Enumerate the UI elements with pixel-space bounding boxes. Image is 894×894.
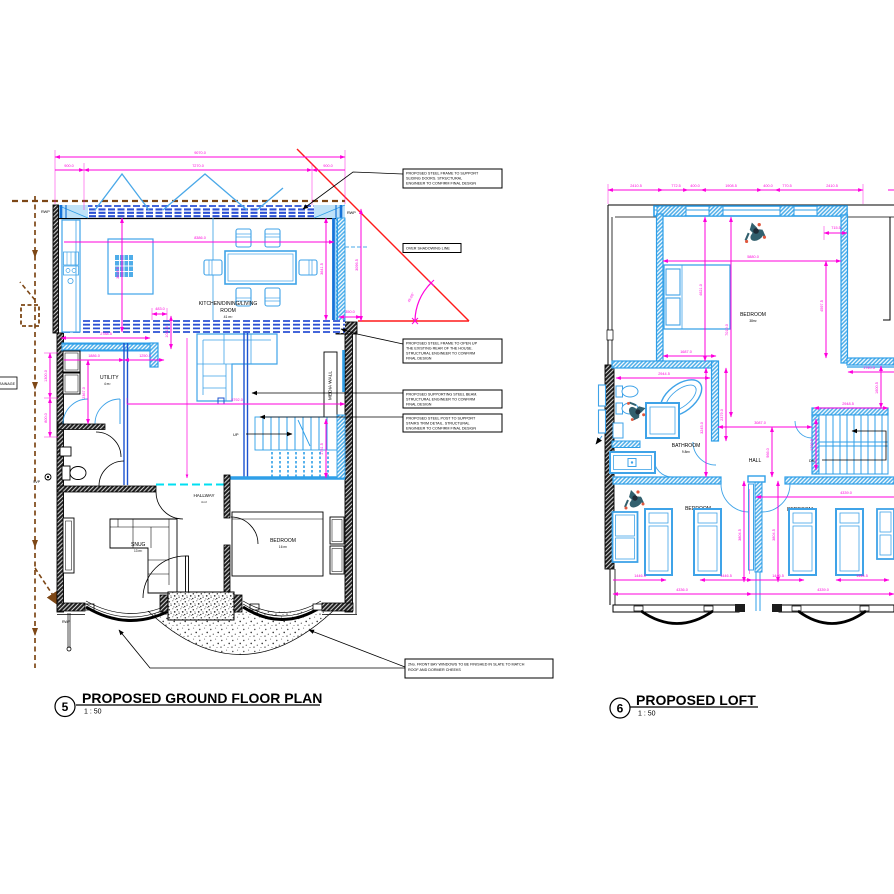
svg-text:9070.0: 9070.0 [194, 151, 206, 155]
svg-text:3618.5: 3618.5 [116, 267, 120, 279]
svg-text:4 m²: 4 m² [104, 382, 110, 386]
svg-text:RWP: RWP [347, 211, 356, 215]
svg-text:BEDROOM: BEDROOM [270, 538, 296, 544]
svg-text:7270.0: 7270.0 [192, 164, 204, 168]
svg-text:8386.0: 8386.0 [194, 236, 206, 240]
svg-text:3641.5: 3641.5 [320, 263, 324, 275]
svg-text:5880.0: 5880.0 [747, 255, 759, 259]
svg-text:MEDIA WALL: MEDIA WALL [328, 371, 334, 400]
svg-text:PROPOSED SUPPORTING STEEL BEAM: PROPOSED SUPPORTING STEEL BEAM. [406, 393, 477, 397]
svg-text:4621.0: 4621.0 [699, 284, 703, 296]
svg-text:BEDROOM: BEDROOM [740, 312, 766, 318]
svg-text:1300.0: 1300.0 [44, 370, 48, 382]
svg-text:SNUG: SNUG [131, 542, 146, 548]
svg-text:FINAL DESIGN: FINAL DESIGN [406, 357, 432, 361]
svg-text:16 m²: 16 m² [279, 545, 287, 549]
svg-text:ENGINEER TO CONFIRM FINAL DESI: ENGINEER TO CONFIRM FINAL DESIGN [406, 427, 476, 431]
svg-text:1250.5: 1250.5 [139, 354, 151, 358]
svg-text:STRUCTURAL ENGINEER TO CONFIRM: STRUCTURAL ENGINEER TO CONFIRM [406, 352, 475, 356]
svg-text:ROOM: ROOM [220, 308, 236, 314]
svg-text:2948.5: 2948.5 [842, 402, 854, 406]
svg-text:1700.0: 1700.0 [810, 439, 814, 451]
svg-text:800.0: 800.0 [44, 413, 48, 423]
svg-text:2367.0: 2367.0 [82, 387, 86, 399]
svg-text:4 m²: 4 m² [201, 500, 207, 504]
svg-text:3245.0: 3245.0 [700, 422, 704, 434]
svg-text:1600.5: 1600.5 [875, 382, 879, 394]
svg-text:OVER SHADOWING LINE: OVER SHADOWING LINE [406, 247, 450, 251]
svg-text:FINAL DESIGN: FINAL DESIGN [406, 403, 432, 407]
svg-text:38m²: 38m² [749, 319, 756, 323]
svg-text:1446.5: 1446.5 [772, 574, 784, 578]
svg-text:RWP: RWP [41, 210, 50, 214]
svg-text:7010.0: 7010.0 [725, 324, 729, 336]
svg-text:1908.5: 1908.5 [725, 184, 737, 188]
svg-text:9.8m²: 9.8m² [682, 450, 690, 454]
svg-text:1446.5: 1446.5 [720, 574, 732, 578]
svg-text:1 : 50: 1 : 50 [638, 711, 656, 718]
svg-text:6792.0: 6792.0 [231, 398, 243, 402]
svg-text:SVP: SVP [33, 480, 41, 484]
svg-text:2788.5: 2788.5 [100, 332, 112, 336]
svg-text:4336.0: 4336.0 [676, 588, 688, 592]
svg-text:1687.0: 1687.0 [680, 350, 692, 354]
svg-text:1446.5: 1446.5 [634, 574, 646, 578]
svg-text:1740.5: 1740.5 [863, 366, 875, 370]
svg-text:1011.5: 1011.5 [165, 326, 169, 337]
svg-text:900.0: 900.0 [64, 164, 74, 168]
svg-text:1751.5: 1751.5 [320, 443, 324, 455]
svg-text:4597.5: 4597.5 [820, 300, 824, 312]
svg-text:THE EXISTING REAR OF THE HOUSE: THE EXISTING REAR OF THE HOUSE. [406, 347, 473, 351]
svg-text:1886.0: 1886.0 [88, 354, 100, 358]
svg-text:900.0: 900.0 [323, 164, 333, 168]
svg-text:STRUCTURAL ENGINEER TO CONFIRM: STRUCTURAL ENGINEER TO CONFIRM [406, 398, 475, 402]
svg-text:KITCHEN/DINING/LIVING: KITCHEN/DINING/LIVING [199, 301, 258, 307]
svg-text:770.5: 770.5 [782, 184, 792, 188]
svg-text:PROPOSED LOFT: PROPOSED LOFT [636, 692, 756, 708]
svg-text:715.5: 715.5 [831, 226, 841, 230]
svg-text:350.0: 350.0 [345, 310, 355, 314]
svg-text:RWP: RWP [62, 620, 71, 624]
svg-text:772.5: 772.5 [671, 184, 681, 188]
svg-text:SLIDING DOORS. STRUCTURAL: SLIDING DOORS. STRUCTURAL [406, 177, 462, 181]
svg-text:HALL: HALL [749, 458, 762, 464]
svg-text:6: 6 [617, 702, 624, 716]
svg-text:1 : 50: 1 : 50 [84, 709, 102, 716]
svg-text:400.0: 400.0 [763, 184, 773, 188]
svg-text:UP: UP [233, 432, 239, 437]
svg-text:DN: DN [809, 459, 815, 463]
svg-text:ENGINEER TO CONFIRM FINAL DESI: ENGINEER TO CONFIRM FINAL DESIGN [406, 182, 476, 186]
svg-text:BATHROOM: BATHROOM [672, 443, 701, 449]
svg-text:400.0: 400.0 [690, 184, 700, 188]
svg-text:3087.0: 3087.0 [754, 421, 766, 425]
svg-text:4339.0: 4339.0 [840, 491, 852, 495]
svg-text:2944.5: 2944.5 [658, 372, 670, 376]
svg-text:PROPOSED GROUND FLOOR PLAN: PROPOSED GROUND FLOOR PLAN [82, 690, 322, 706]
svg-text:2No. FRONT BAY WINDOWS TO BE F: 2No. FRONT BAY WINDOWS TO BE FINISHED IN… [408, 663, 525, 667]
svg-text:STAIRS TRIM DETAIL. STRUCTURAL: STAIRS TRIM DETAIL. STRUCTURAL [406, 422, 470, 426]
svg-text:1446.5: 1446.5 [856, 574, 868, 578]
svg-text:5: 5 [62, 700, 69, 714]
svg-text:483.0: 483.0 [155, 307, 165, 311]
svg-text:2379.0: 2379.0 [720, 409, 724, 421]
svg-text:3804.5: 3804.5 [772, 529, 776, 541]
svg-text:3096.5: 3096.5 [355, 259, 359, 271]
svg-text:ROOF AND DORMER CHEEKS: ROOF AND DORMER CHEEKS [408, 668, 461, 672]
svg-text:RAINAGE: RAINAGE [0, 382, 16, 386]
svg-text:UTILITY: UTILITY [100, 375, 119, 381]
svg-text:966.0: 966.0 [766, 448, 770, 458]
svg-text:2410.5: 2410.5 [630, 184, 642, 188]
svg-text:41 m²: 41 m² [224, 315, 234, 319]
svg-text:2410.5: 2410.5 [826, 184, 838, 188]
svg-text:13 m²: 13 m² [134, 549, 142, 553]
svg-text:4339.0: 4339.0 [817, 588, 829, 592]
svg-text:PROPOSED STEEL FRAME TO OPEN U: PROPOSED STEEL FRAME TO OPEN UP [406, 342, 478, 346]
svg-text:3804.5: 3804.5 [738, 529, 742, 541]
svg-text:HALLWAY: HALLWAY [193, 493, 214, 498]
svg-text:PROPOSED STEEL FRAME TO SUPPOR: PROPOSED STEEL FRAME TO SUPPORT [406, 172, 479, 176]
svg-text:PROPOSED STEEL POST TO SUPPORT: PROPOSED STEEL POST TO SUPPORT [406, 417, 476, 421]
